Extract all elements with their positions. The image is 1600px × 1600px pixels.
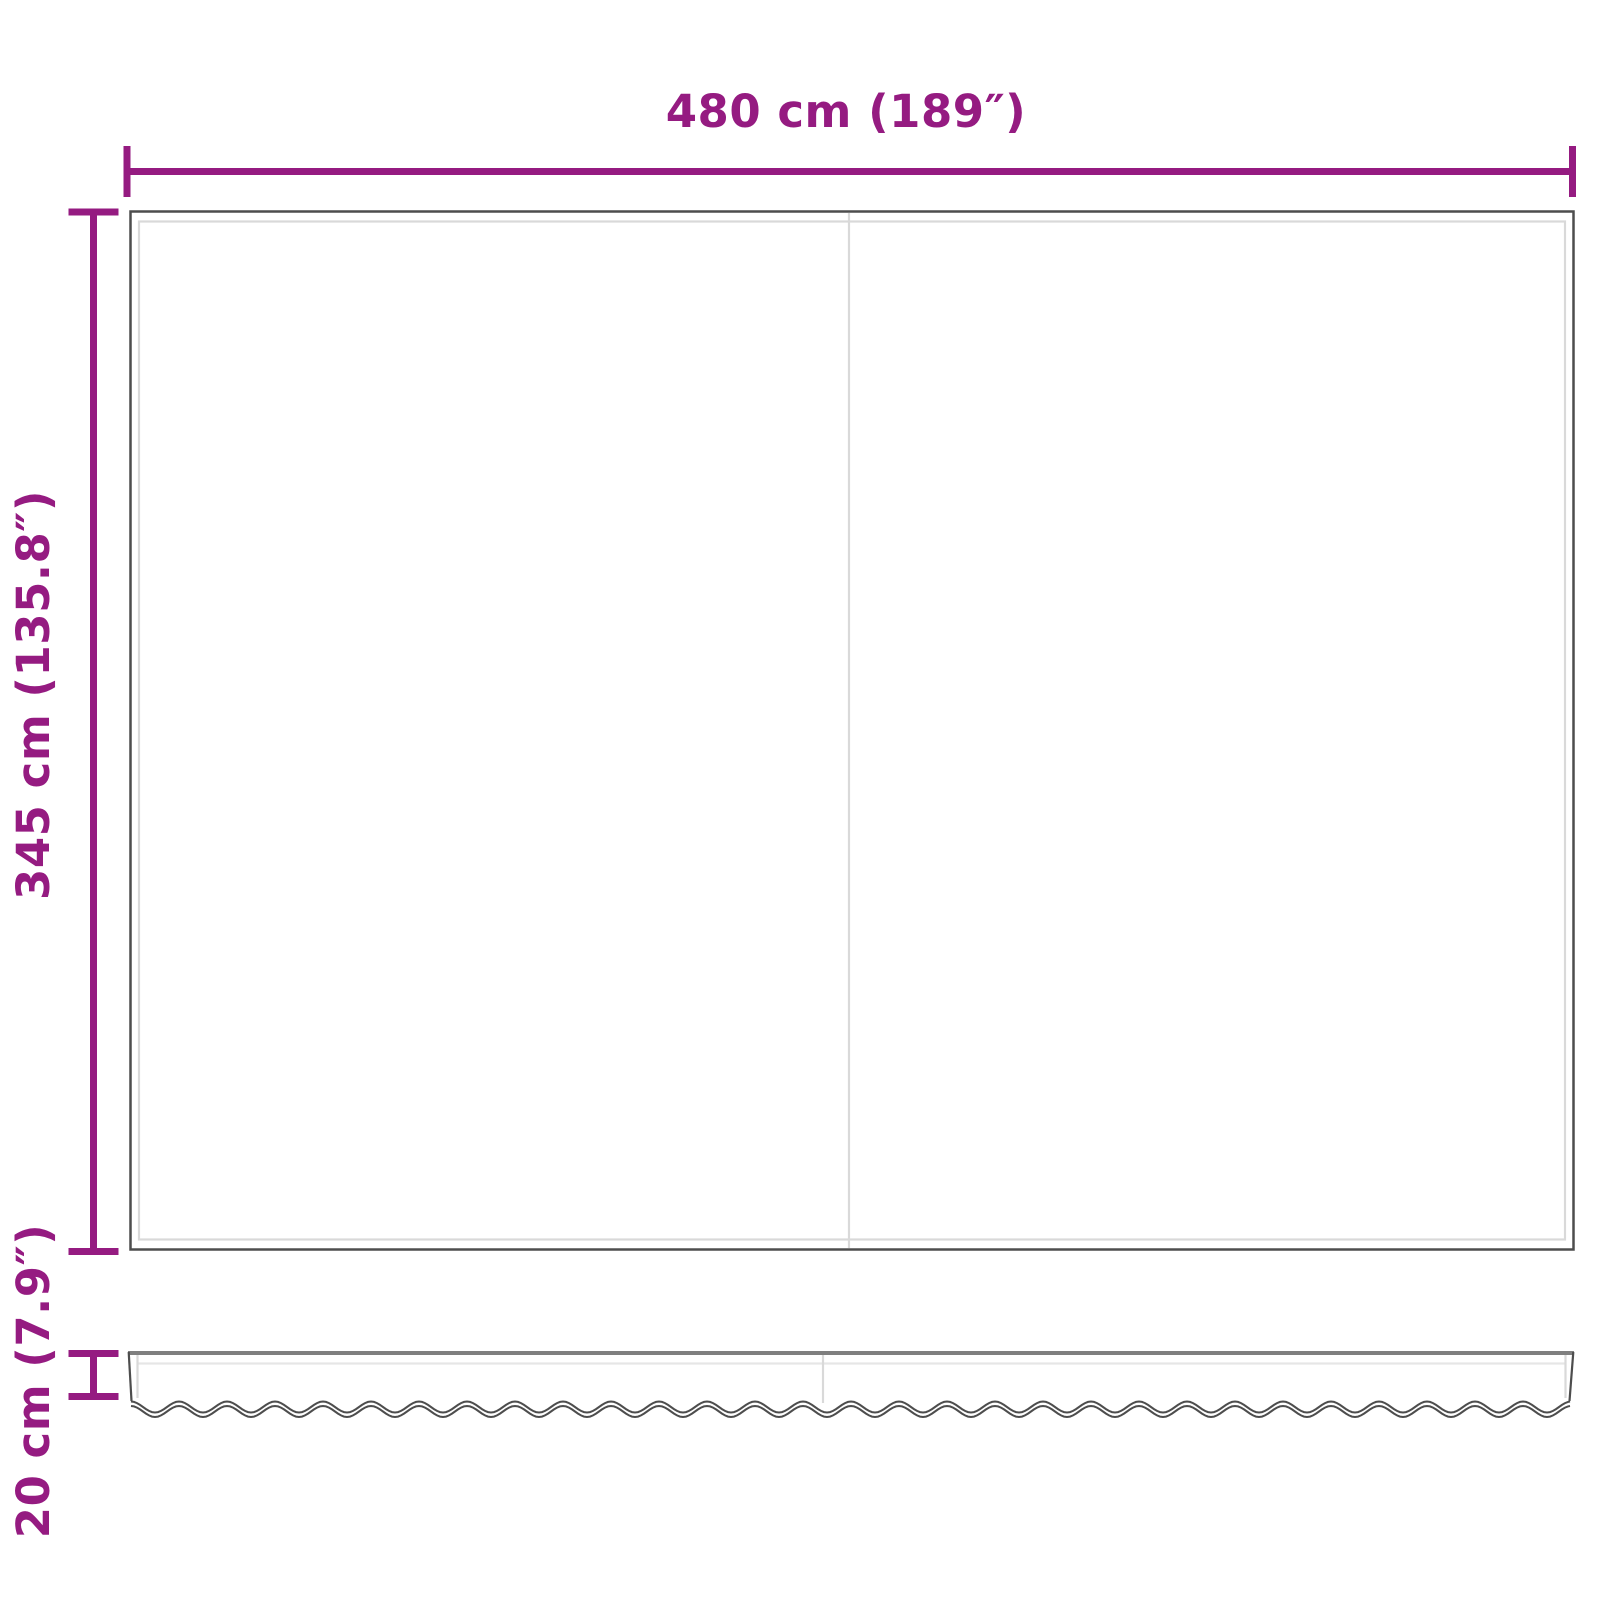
dimension-diagram: 480 cm (189″) 345 cm (135.8″) 20 cm (7.9… [0,0,1600,1600]
valance-strip [128,1352,1574,1417]
width-dimension-label: 480 cm (189″) [666,85,1027,138]
valance-fill [129,1352,1574,1401]
diagram-svg: 480 cm (189″) 345 cm (135.8″) 20 cm (7.9… [0,0,1600,1600]
height-dimension: 345 cm (135.8″) [7,212,119,1252]
main-fabric-panel [131,212,1574,1250]
height-dimension-label: 345 cm (135.8″) [7,490,60,900]
width-dimension: 480 cm (189″) [127,85,1573,197]
valance-dimension-label: 20 cm (7.9″) [7,1224,60,1538]
valance-height-dimension: 20 cm (7.9″) [7,1224,119,1538]
main-panel-outline [131,212,1574,1250]
